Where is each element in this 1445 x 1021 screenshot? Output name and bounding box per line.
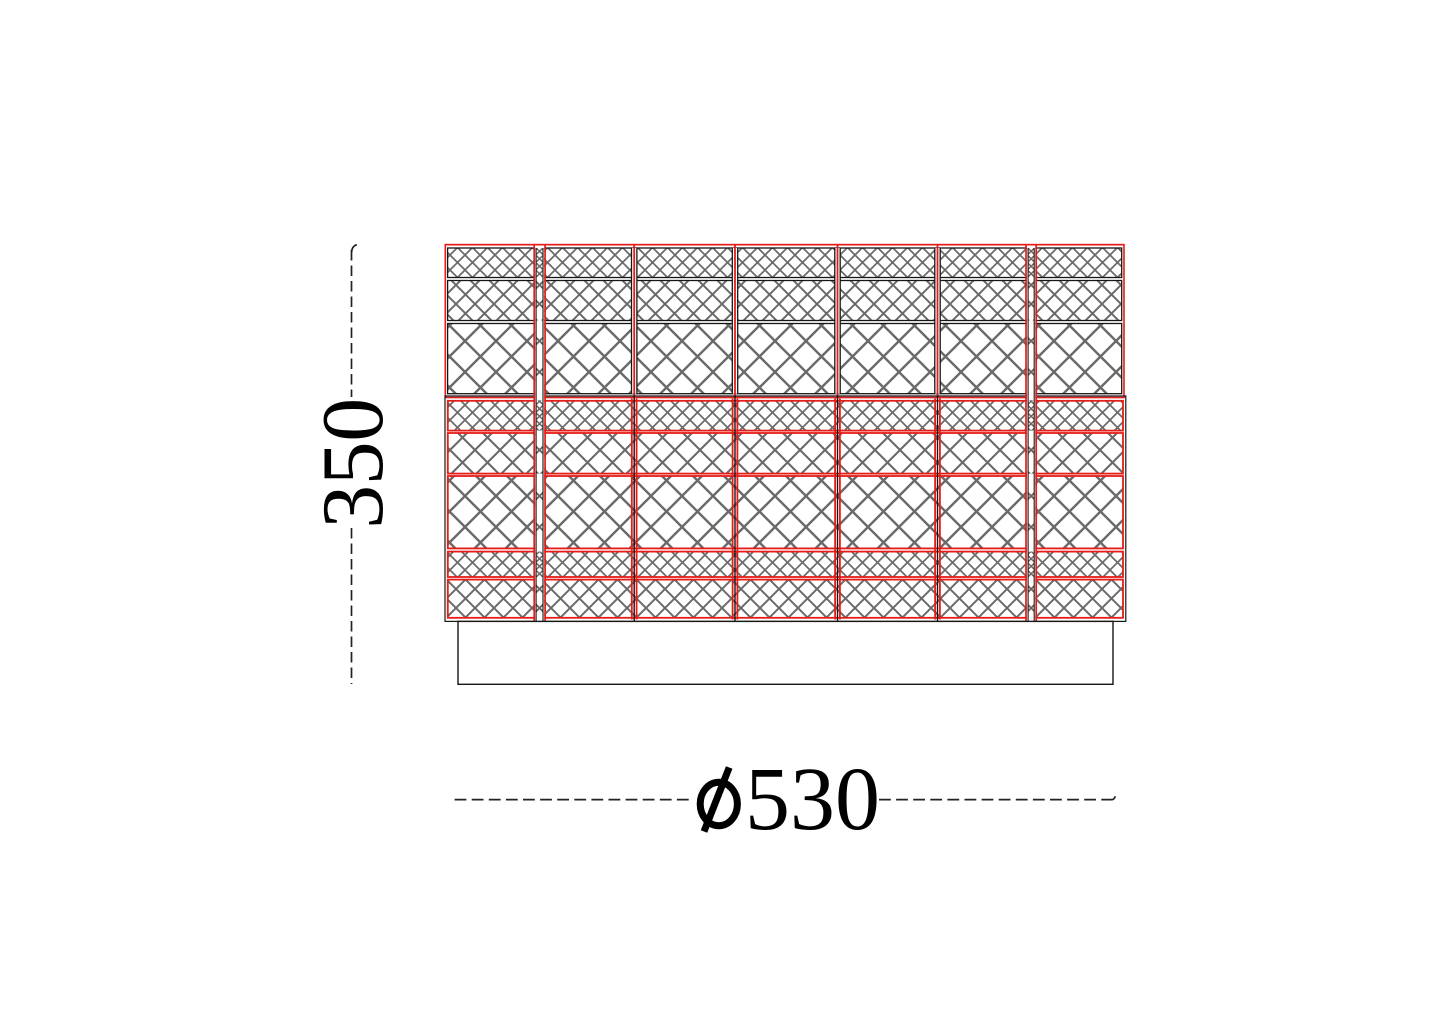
svg-text:350: 350: [305, 398, 402, 529]
svg-text:530: 530: [745, 750, 880, 849]
